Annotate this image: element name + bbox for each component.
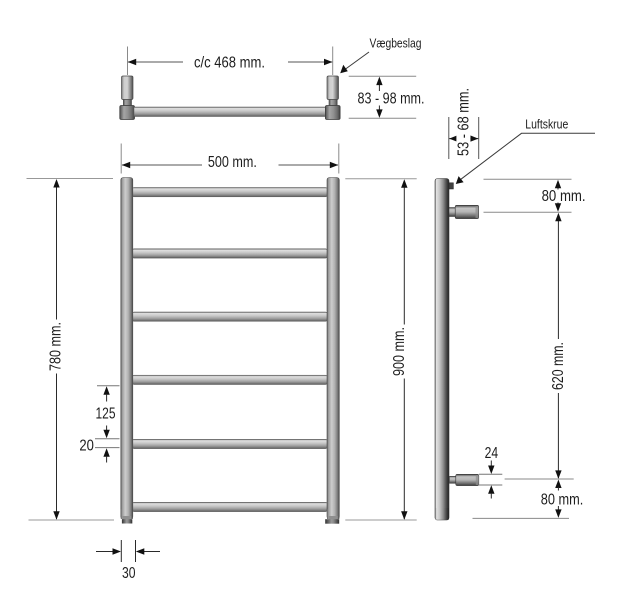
svg-text:20: 20 xyxy=(79,437,94,454)
svg-text:125: 125 xyxy=(96,405,116,422)
svg-text:80 mm.: 80 mm. xyxy=(541,491,584,508)
svg-text:c/c 468 mm.: c/c 468 mm. xyxy=(194,54,265,71)
svg-text:83 - 98 mm.: 83 - 98 mm. xyxy=(358,91,425,108)
svg-text:900 mm.: 900 mm. xyxy=(391,327,408,376)
svg-text:80 mm.: 80 mm. xyxy=(542,188,586,205)
svg-text:53 - 68 mm.: 53 - 68 mm. xyxy=(455,88,472,156)
svg-text:500 mm.: 500 mm. xyxy=(208,154,257,171)
svg-text:Vægbeslag: Vægbeslag xyxy=(370,37,422,51)
svg-text:780 mm.: 780 mm. xyxy=(47,322,64,371)
svg-text:24: 24 xyxy=(485,445,499,462)
svg-text:Luftskrue: Luftskrue xyxy=(525,118,568,132)
svg-text:30: 30 xyxy=(122,565,136,582)
svg-text:620 mm.: 620 mm. xyxy=(550,342,567,390)
